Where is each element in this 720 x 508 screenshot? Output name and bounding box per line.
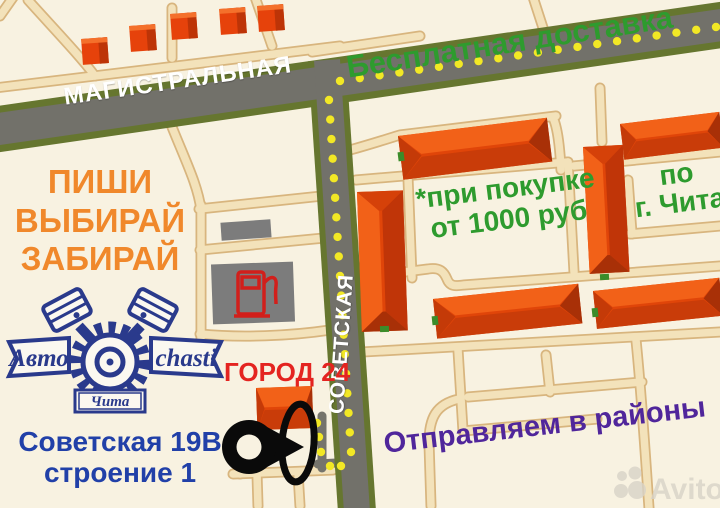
cta-line-1: ПИШИ: [2, 163, 198, 202]
avito-watermark-text: Avito: [650, 473, 720, 506]
cta-text: ПИШИ ВЫБИРАЙ ЗАБИРАЙ: [2, 163, 198, 279]
gear-icon: [76, 328, 144, 396]
landmark-label: ГОРОД 24: [224, 357, 350, 388]
shop-address: Советская 19В строение 1: [6, 426, 234, 489]
map-canvas: Avito: [0, 0, 720, 508]
address-line-1: Советская 19В: [6, 426, 234, 457]
gas-station-kiosk: [220, 219, 271, 240]
logo-text-right: chasti: [155, 345, 216, 372]
cta-line-3: ЗАБИРАЙ: [2, 240, 198, 279]
logo-text-city: Чита: [91, 394, 130, 410]
address-line-2: строение 1: [6, 457, 234, 488]
cta-line-2: ВЫБИРАЙ: [2, 202, 198, 241]
logo-text-left: Авто: [7, 345, 68, 372]
delivery-area-text: по г. Чита: [620, 153, 720, 225]
